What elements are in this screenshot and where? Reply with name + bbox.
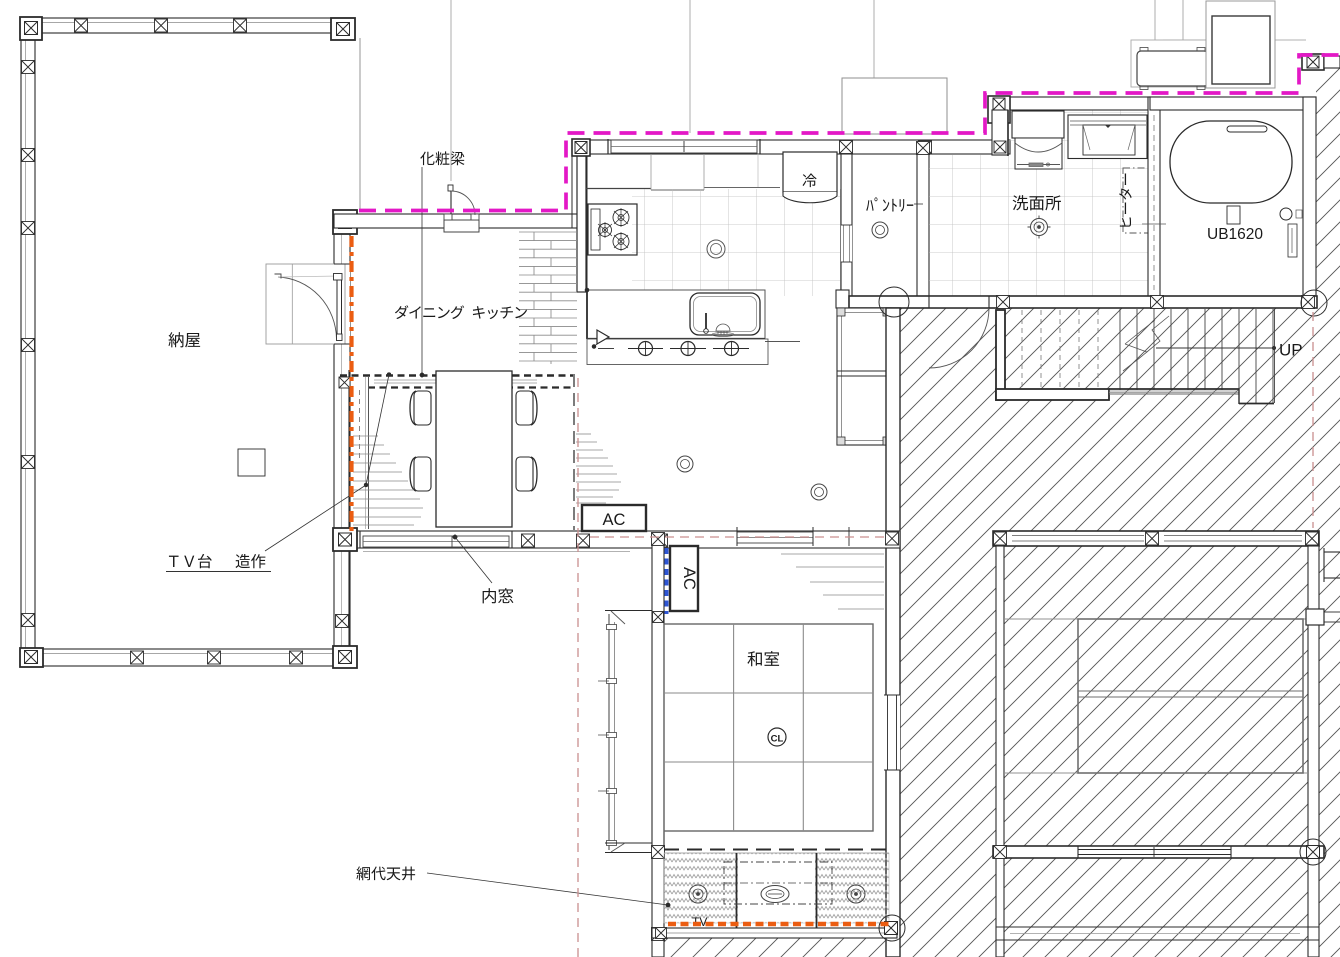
svg-text:UP: UP: [1279, 341, 1303, 360]
svg-text:AC: AC: [680, 567, 698, 590]
svg-text:CL: CL: [771, 734, 784, 745]
svg-text:UB1620: UB1620: [1207, 226, 1263, 243]
svg-text:AC: AC: [603, 511, 626, 529]
